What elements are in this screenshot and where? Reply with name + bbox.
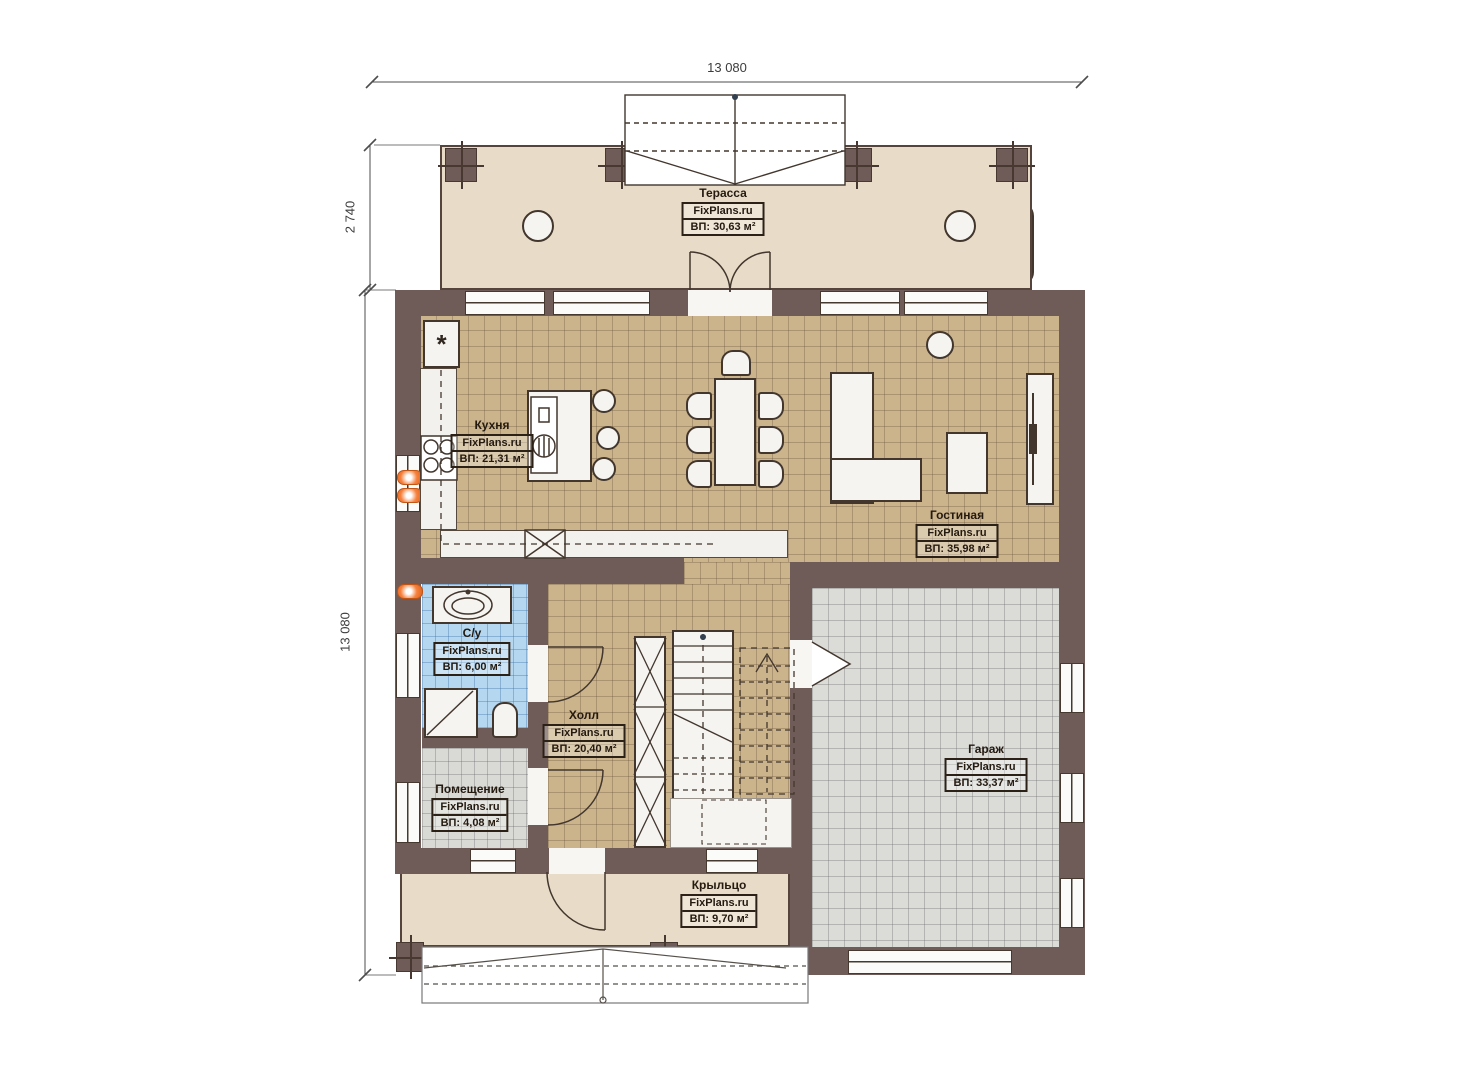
dimension-terrace-depth: 2 740	[343, 201, 358, 234]
kitchen-stool-2	[596, 426, 620, 450]
terrace-column-4	[996, 148, 1028, 182]
snowflake-icon: *	[436, 329, 446, 360]
coffee-table	[946, 432, 988, 494]
stair-landing	[670, 798, 792, 848]
window-garage-right-3	[1060, 878, 1084, 928]
terrace-column-1	[445, 148, 477, 182]
room-name: Гостиная	[916, 508, 999, 522]
area-text: ВП: 35,98 м²	[918, 542, 997, 556]
room-label-living: Гостиная FixPlans.ru ВП: 35,98 м²	[916, 508, 999, 558]
area-text: ВП: 4,08 м²	[433, 816, 506, 830]
kitchen-stool-3	[592, 457, 616, 481]
room-info-box: FixPlans.ru ВП: 21,31 м²	[451, 434, 534, 468]
room-info-box: FixPlans.ru ВП: 35,98 м²	[916, 524, 999, 558]
porch-column-1	[396, 942, 424, 972]
area-text: ВП: 9,70 м²	[682, 912, 755, 926]
window-living-top-2	[904, 291, 988, 315]
terrace-table-left	[522, 210, 554, 242]
brand-text: FixPlans.ru	[684, 204, 763, 220]
room-name: Терасса	[682, 186, 765, 200]
fridge: *	[423, 320, 460, 368]
window-garage-right-2	[1060, 773, 1084, 823]
window-utility-left	[396, 782, 420, 843]
room-label-terrace: Терасса FixPlans.ru ВП: 30,63 м²	[682, 186, 765, 236]
shower	[424, 688, 478, 738]
area-text: ВП: 21,31 м²	[453, 452, 532, 466]
wall-kitchen-hall	[420, 558, 684, 584]
bathroom-door-opening	[528, 645, 548, 702]
tv-stand	[1026, 373, 1054, 505]
terrace-column-2	[605, 148, 637, 182]
window-living-top-1	[820, 291, 900, 315]
area-text: ВП: 30,63 м²	[684, 220, 763, 234]
dining-chair-right-2	[758, 426, 784, 454]
kitchen-counter-bottom	[440, 530, 788, 558]
room-info-box: FixPlans.ru ВП: 4,08 м²	[431, 798, 508, 832]
garage-vehicle-door	[848, 950, 1012, 974]
window-bathroom-left	[396, 633, 420, 698]
brand-text: FixPlans.ru	[545, 726, 624, 742]
terrace-column-3	[840, 148, 872, 182]
area-text: ВП: 20,40 м²	[545, 742, 624, 756]
wall-garage-left	[790, 562, 812, 947]
wall-garage-top	[790, 562, 1085, 588]
wall-right	[1059, 290, 1085, 975]
area-text: ВП: 6,00 м²	[435, 660, 508, 674]
utility-door-opening	[528, 768, 548, 825]
brand-text: FixPlans.ru	[947, 760, 1026, 776]
room-label-garage: Гараж FixPlans.ru ВП: 33,37 м²	[945, 742, 1028, 792]
radiator-bathroom	[397, 584, 423, 599]
room-name: Кухня	[451, 418, 534, 432]
room-info-box: FixPlans.ru ВП: 9,70 м²	[680, 894, 757, 928]
room-info-box: FixPlans.ru ВП: 33,37 м²	[945, 758, 1028, 792]
brand-text: FixPlans.ru	[435, 644, 508, 660]
room-label-porch: Крыльцо FixPlans.ru ВП: 9,70 м²	[680, 878, 757, 928]
brand-text: FixPlans.ru	[433, 800, 506, 816]
terrace-table-right	[944, 210, 976, 242]
room-label-utility: Помещение FixPlans.ru ВП: 4,08 м²	[431, 782, 508, 832]
living-side-table	[926, 331, 954, 359]
wardrobe	[634, 636, 666, 848]
room-name: Холл	[543, 708, 626, 722]
window-bottom-2	[706, 849, 758, 873]
area-text: ВП: 33,37 м²	[947, 776, 1026, 790]
dining-chair-left-3	[686, 460, 712, 488]
room-info-box: FixPlans.ru ВП: 30,63 м²	[682, 202, 765, 236]
kitchen-island	[527, 390, 592, 482]
floor-plan-canvas: *	[0, 0, 1473, 1080]
room-label-bathroom: С/у FixPlans.ru ВП: 6,00 м²	[433, 626, 510, 676]
window-dining-top	[553, 291, 650, 315]
room-label-kitchen: Кухня FixPlans.ru ВП: 21,31 м²	[451, 418, 534, 468]
room-name: Помещение	[431, 782, 508, 796]
window-garage-right-1	[1060, 663, 1084, 713]
room-label-hall: Холл FixPlans.ru ВП: 20,40 м²	[543, 708, 626, 758]
kitchen-stool-1	[592, 389, 616, 413]
dimension-left-height: 13 080	[338, 612, 353, 652]
room-name: С/у	[433, 626, 510, 640]
room-info-box: FixPlans.ru ВП: 20,40 м²	[543, 724, 626, 758]
vanity	[432, 586, 512, 624]
window-bottom-1	[470, 849, 516, 873]
window-kitchen-top	[465, 291, 545, 315]
stair-flight	[672, 630, 734, 800]
dining-chair-right-1	[758, 392, 784, 420]
room-name: Крыльцо	[680, 878, 757, 892]
dining-table	[714, 378, 756, 486]
dining-chair-left-2	[686, 426, 712, 454]
sofa-horizontal	[830, 458, 922, 502]
passage-floor	[684, 562, 790, 584]
entrance-door-opening	[549, 848, 605, 874]
room-info-box: FixPlans.ru ВП: 6,00 м²	[433, 642, 510, 676]
dining-chair-top	[721, 350, 751, 376]
dining-chair-right-3	[758, 460, 784, 488]
room-name: Гараж	[945, 742, 1028, 756]
toilet	[492, 702, 518, 738]
garage-door-opening	[790, 640, 812, 688]
brand-text: FixPlans.ru	[682, 896, 755, 912]
brand-text: FixPlans.ru	[453, 436, 532, 452]
terrace-door-opening	[688, 290, 772, 316]
porch-column-2	[650, 942, 678, 972]
dining-chair-left-1	[686, 392, 712, 420]
dimension-top-width: 13 080	[707, 60, 747, 75]
porch-steps	[422, 947, 808, 1003]
brand-text: FixPlans.ru	[918, 526, 997, 542]
